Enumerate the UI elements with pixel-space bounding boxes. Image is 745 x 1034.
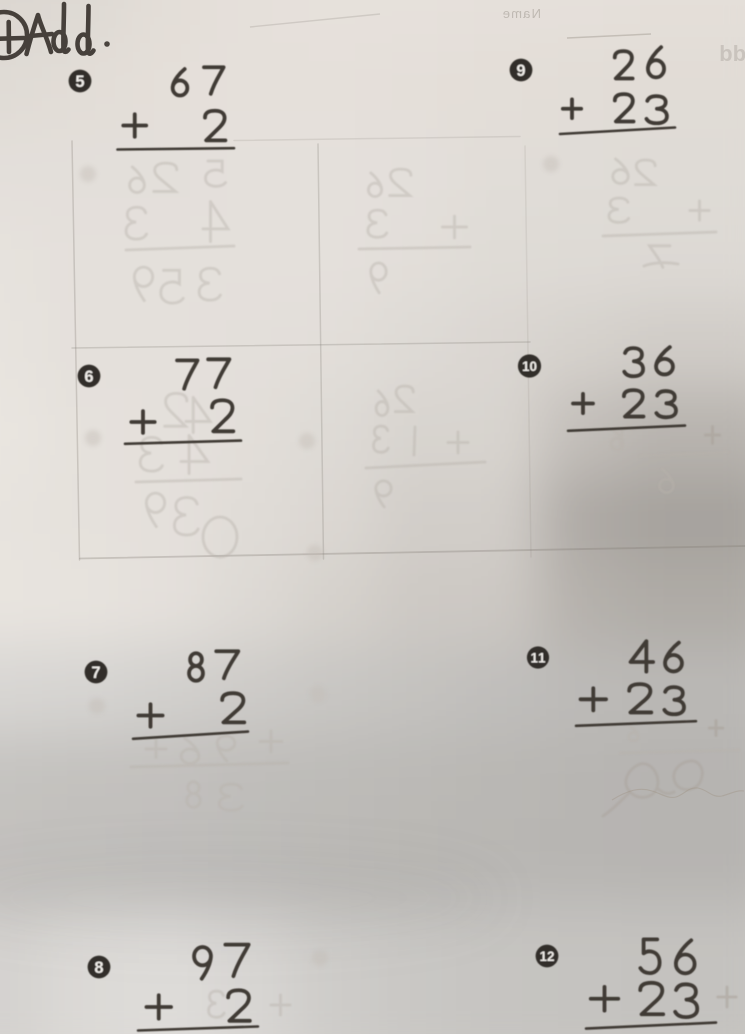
svg-text:Name: Name [502,6,541,21]
svg-text:7: 7 [91,664,100,682]
svg-text:10: 10 [522,359,537,374]
svg-text:12: 12 [540,949,555,964]
svg-text:8: 8 [94,959,103,977]
svg-text:5: 5 [75,73,84,91]
svg-text:6: 6 [84,368,93,386]
svg-text:11: 11 [531,650,546,665]
svg-text:Add: Add [719,41,745,66]
svg-text:9: 9 [516,62,525,80]
